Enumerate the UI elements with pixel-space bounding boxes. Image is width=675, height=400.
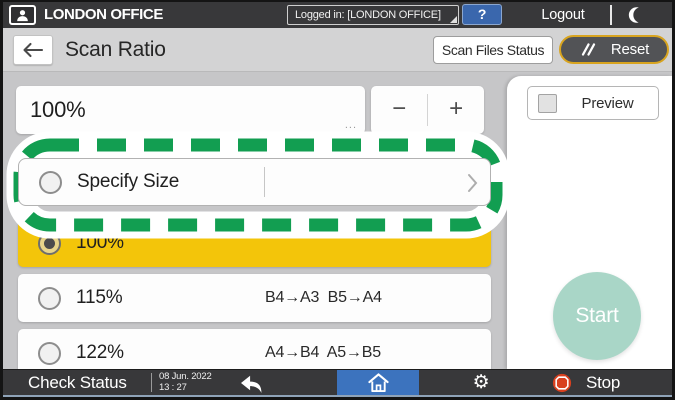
- stop-octagon-icon: [552, 373, 572, 393]
- undo-arrow-icon: [237, 373, 265, 393]
- user-account-button[interactable]: [9, 5, 36, 25]
- logged-in-status[interactable]: Logged in: [LONDON OFFICE]: [287, 5, 459, 25]
- ellipsis-indicator: ...: [345, 119, 357, 131]
- check-status-button[interactable]: Check Status: [28, 370, 127, 395]
- ratio-option-115-radio[interactable]: [38, 287, 61, 310]
- time-text: 13 : 27: [159, 383, 212, 394]
- bottom-bar: Check Status 08 Jun. 2022 13 : 27 ⚙ Sto: [3, 369, 672, 395]
- specify-size-row[interactable]: Specify Size: [18, 158, 491, 206]
- start-button[interactable]: Start: [553, 272, 641, 360]
- bottom-bar-divider: [151, 373, 152, 392]
- decrease-button[interactable]: −: [371, 86, 427, 134]
- logout-button[interactable]: Logout: [525, 2, 601, 28]
- reset-slashes-icon: [579, 42, 597, 57]
- ratio-option-115[interactable]: 115% B4→A3 B5→A4: [18, 274, 491, 322]
- ratio-option-122-label: 122%: [76, 342, 124, 364]
- preview-label: Preview: [557, 95, 658, 112]
- gear-icon: ⚙: [473, 372, 490, 393]
- back-undo-button[interactable]: [237, 373, 267, 393]
- screen-header: Scan Ratio Scan Files Status Reset: [3, 28, 672, 72]
- specify-size-divider: [264, 167, 265, 197]
- ratio-stepper: − +: [371, 86, 484, 134]
- content-area: 100% ... − + Specify Size 100% 115%: [3, 72, 672, 369]
- copier-touchscreen: LONDON OFFICE Logged in: [LONDON OFFICE]…: [0, 0, 675, 400]
- preview-button[interactable]: Preview: [527, 86, 659, 120]
- ratio-option-115-conversion: B4→A3 B5→A4: [265, 289, 382, 307]
- ratio-option-122[interactable]: 122% A4→B4 A5→B5: [18, 329, 491, 369]
- chevron-right-icon: [467, 173, 478, 193]
- moon-icon: [627, 4, 649, 26]
- home-icon: [367, 372, 390, 393]
- preview-checkbox[interactable]: [538, 94, 557, 113]
- settings-button[interactable]: ⚙: [459, 370, 503, 395]
- specify-size-radio[interactable]: [39, 171, 62, 194]
- logged-in-text: Logged in: [LONDON OFFICE]: [295, 9, 441, 21]
- date-text: 08 Jun. 2022: [159, 372, 212, 383]
- scan-files-status-button[interactable]: Scan Files Status: [433, 36, 553, 64]
- reset-button[interactable]: Reset: [559, 35, 669, 64]
- energy-saver-button[interactable]: [623, 4, 653, 26]
- date-time: 08 Jun. 2022 13 : 27: [159, 372, 212, 393]
- ratio-option-100-radio[interactable]: [38, 232, 61, 255]
- specify-size-label: Specify Size: [77, 171, 179, 193]
- back-arrow-icon: [22, 42, 44, 58]
- ratio-value-field[interactable]: 100% ...: [16, 86, 365, 134]
- account-name: LONDON OFFICE: [44, 2, 163, 28]
- ratio-value: 100%: [30, 86, 85, 134]
- increase-button[interactable]: +: [428, 86, 484, 134]
- top-bar-divider: [610, 5, 612, 25]
- stop-button[interactable]: Stop: [586, 370, 620, 395]
- back-button[interactable]: [13, 35, 53, 65]
- dropdown-corner-icon: [450, 16, 457, 23]
- help-button[interactable]: ?: [462, 4, 502, 25]
- top-bar: LONDON OFFICE Logged in: [LONDON OFFICE]…: [3, 2, 672, 28]
- page-title: Scan Ratio: [65, 28, 166, 72]
- ratio-option-115-label: 115%: [76, 287, 122, 309]
- screen-bottom-edge: [3, 395, 672, 397]
- right-panel: Preview Start: [507, 76, 672, 369]
- stop-icon-button[interactable]: [552, 373, 572, 393]
- ratio-option-122-conversion: A4→B4 A5→B5: [265, 344, 381, 362]
- ratio-option-100[interactable]: 100%: [18, 219, 491, 267]
- ratio-option-100-label: 100%: [76, 232, 124, 254]
- start-label: Start: [575, 304, 618, 328]
- reset-label: Reset: [611, 41, 649, 58]
- user-icon: [15, 8, 30, 23]
- home-button[interactable]: [337, 370, 419, 395]
- ratio-option-122-radio[interactable]: [38, 342, 61, 365]
